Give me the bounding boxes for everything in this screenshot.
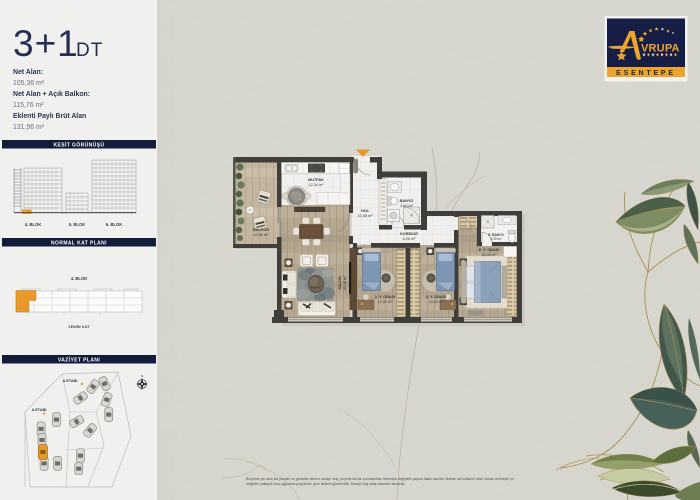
svg-text:A ETABI: A ETABI	[32, 408, 47, 412]
svg-text:4. BLOK: 4. BLOK	[25, 222, 42, 227]
svg-text:13,43 m²: 13,43 m²	[429, 300, 445, 304]
svg-text:değerleri yaklaşık olup uygula: değerleri yaklaşık olup uygulama projele…	[246, 482, 405, 486]
svg-text:10,98 m²: 10,98 m²	[358, 214, 374, 218]
svg-text:Eklenti Paylı Brüt Alan: Eklenti Paylı Brüt Alan	[13, 113, 86, 120]
svg-text:6. BLOK: 6. BLOK	[106, 222, 123, 227]
svg-text:VAZİYET PLANI: VAZİYET PLANI	[58, 356, 101, 363]
svg-text:VRUPA: VRUPA	[641, 43, 680, 55]
svg-text:3+1: 3+1	[13, 23, 79, 64]
svg-text:BANYO: BANYO	[400, 199, 414, 203]
svg-text:E. Y. ODASI: E. Y. ODASI	[479, 248, 500, 252]
svg-text:4,60 m²: 4,60 m²	[400, 204, 414, 208]
svg-text:ZEMİN KAT: ZEMİN KAT	[68, 324, 90, 329]
svg-text:3. Y. ODASI: 3. Y. ODASI	[426, 295, 446, 299]
svg-text:Broşürde yer alan kat planları: Broşürde yer alan kat planları ve görsel…	[246, 477, 515, 481]
svg-text:SALON: SALON	[338, 276, 342, 290]
svg-text:12,97 m²: 12,97 m²	[378, 300, 394, 304]
svg-text:105,36 m²: 105,36 m²	[13, 80, 45, 87]
svg-text:N: N	[141, 374, 143, 378]
svg-text:4,25 m²: 4,25 m²	[491, 237, 502, 241]
svg-text:A ETABI: A ETABI	[63, 379, 78, 383]
svg-text:5. BLOK: 5. BLOK	[69, 222, 86, 227]
svg-text:6,26 m²: 6,26 m²	[403, 237, 417, 241]
svg-text:12,34 m²: 12,34 m²	[309, 183, 325, 187]
svg-text:Net Alan + Açık Balkon:: Net Alan + Açık Balkon:	[13, 91, 90, 98]
svg-text:NORMAL KAT PLANI: NORMAL KAT PLANI	[51, 240, 107, 246]
svg-text:DT: DT	[76, 40, 103, 61]
svg-text:Net Alan:: Net Alan:	[13, 69, 43, 76]
svg-text:KORİDOR: KORİDOR	[400, 232, 418, 236]
svg-text:HOL: HOL	[361, 209, 370, 213]
svg-text:115,76 m²: 115,76 m²	[13, 102, 44, 109]
svg-text:ESENTEPE: ESENTEPE	[616, 70, 676, 77]
svg-text:10,50 m²: 10,50 m²	[254, 233, 270, 237]
svg-text:KESİT GÖRÜNÜŞÜ: KESİT GÖRÜNÜŞÜ	[54, 141, 105, 148]
svg-text:30,36 m²: 30,36 m²	[343, 275, 347, 291]
svg-text:131,96 m²: 131,96 m²	[13, 124, 45, 131]
svg-text:2. Y. ODASI: 2. Y. ODASI	[375, 295, 395, 299]
svg-text:4. BLOK: 4. BLOK	[71, 276, 88, 281]
svg-text:MUTFAK: MUTFAK	[308, 178, 324, 182]
svg-text:14,02 m²: 14,02 m²	[482, 253, 498, 257]
svg-text:BALKON: BALKON	[253, 228, 269, 232]
